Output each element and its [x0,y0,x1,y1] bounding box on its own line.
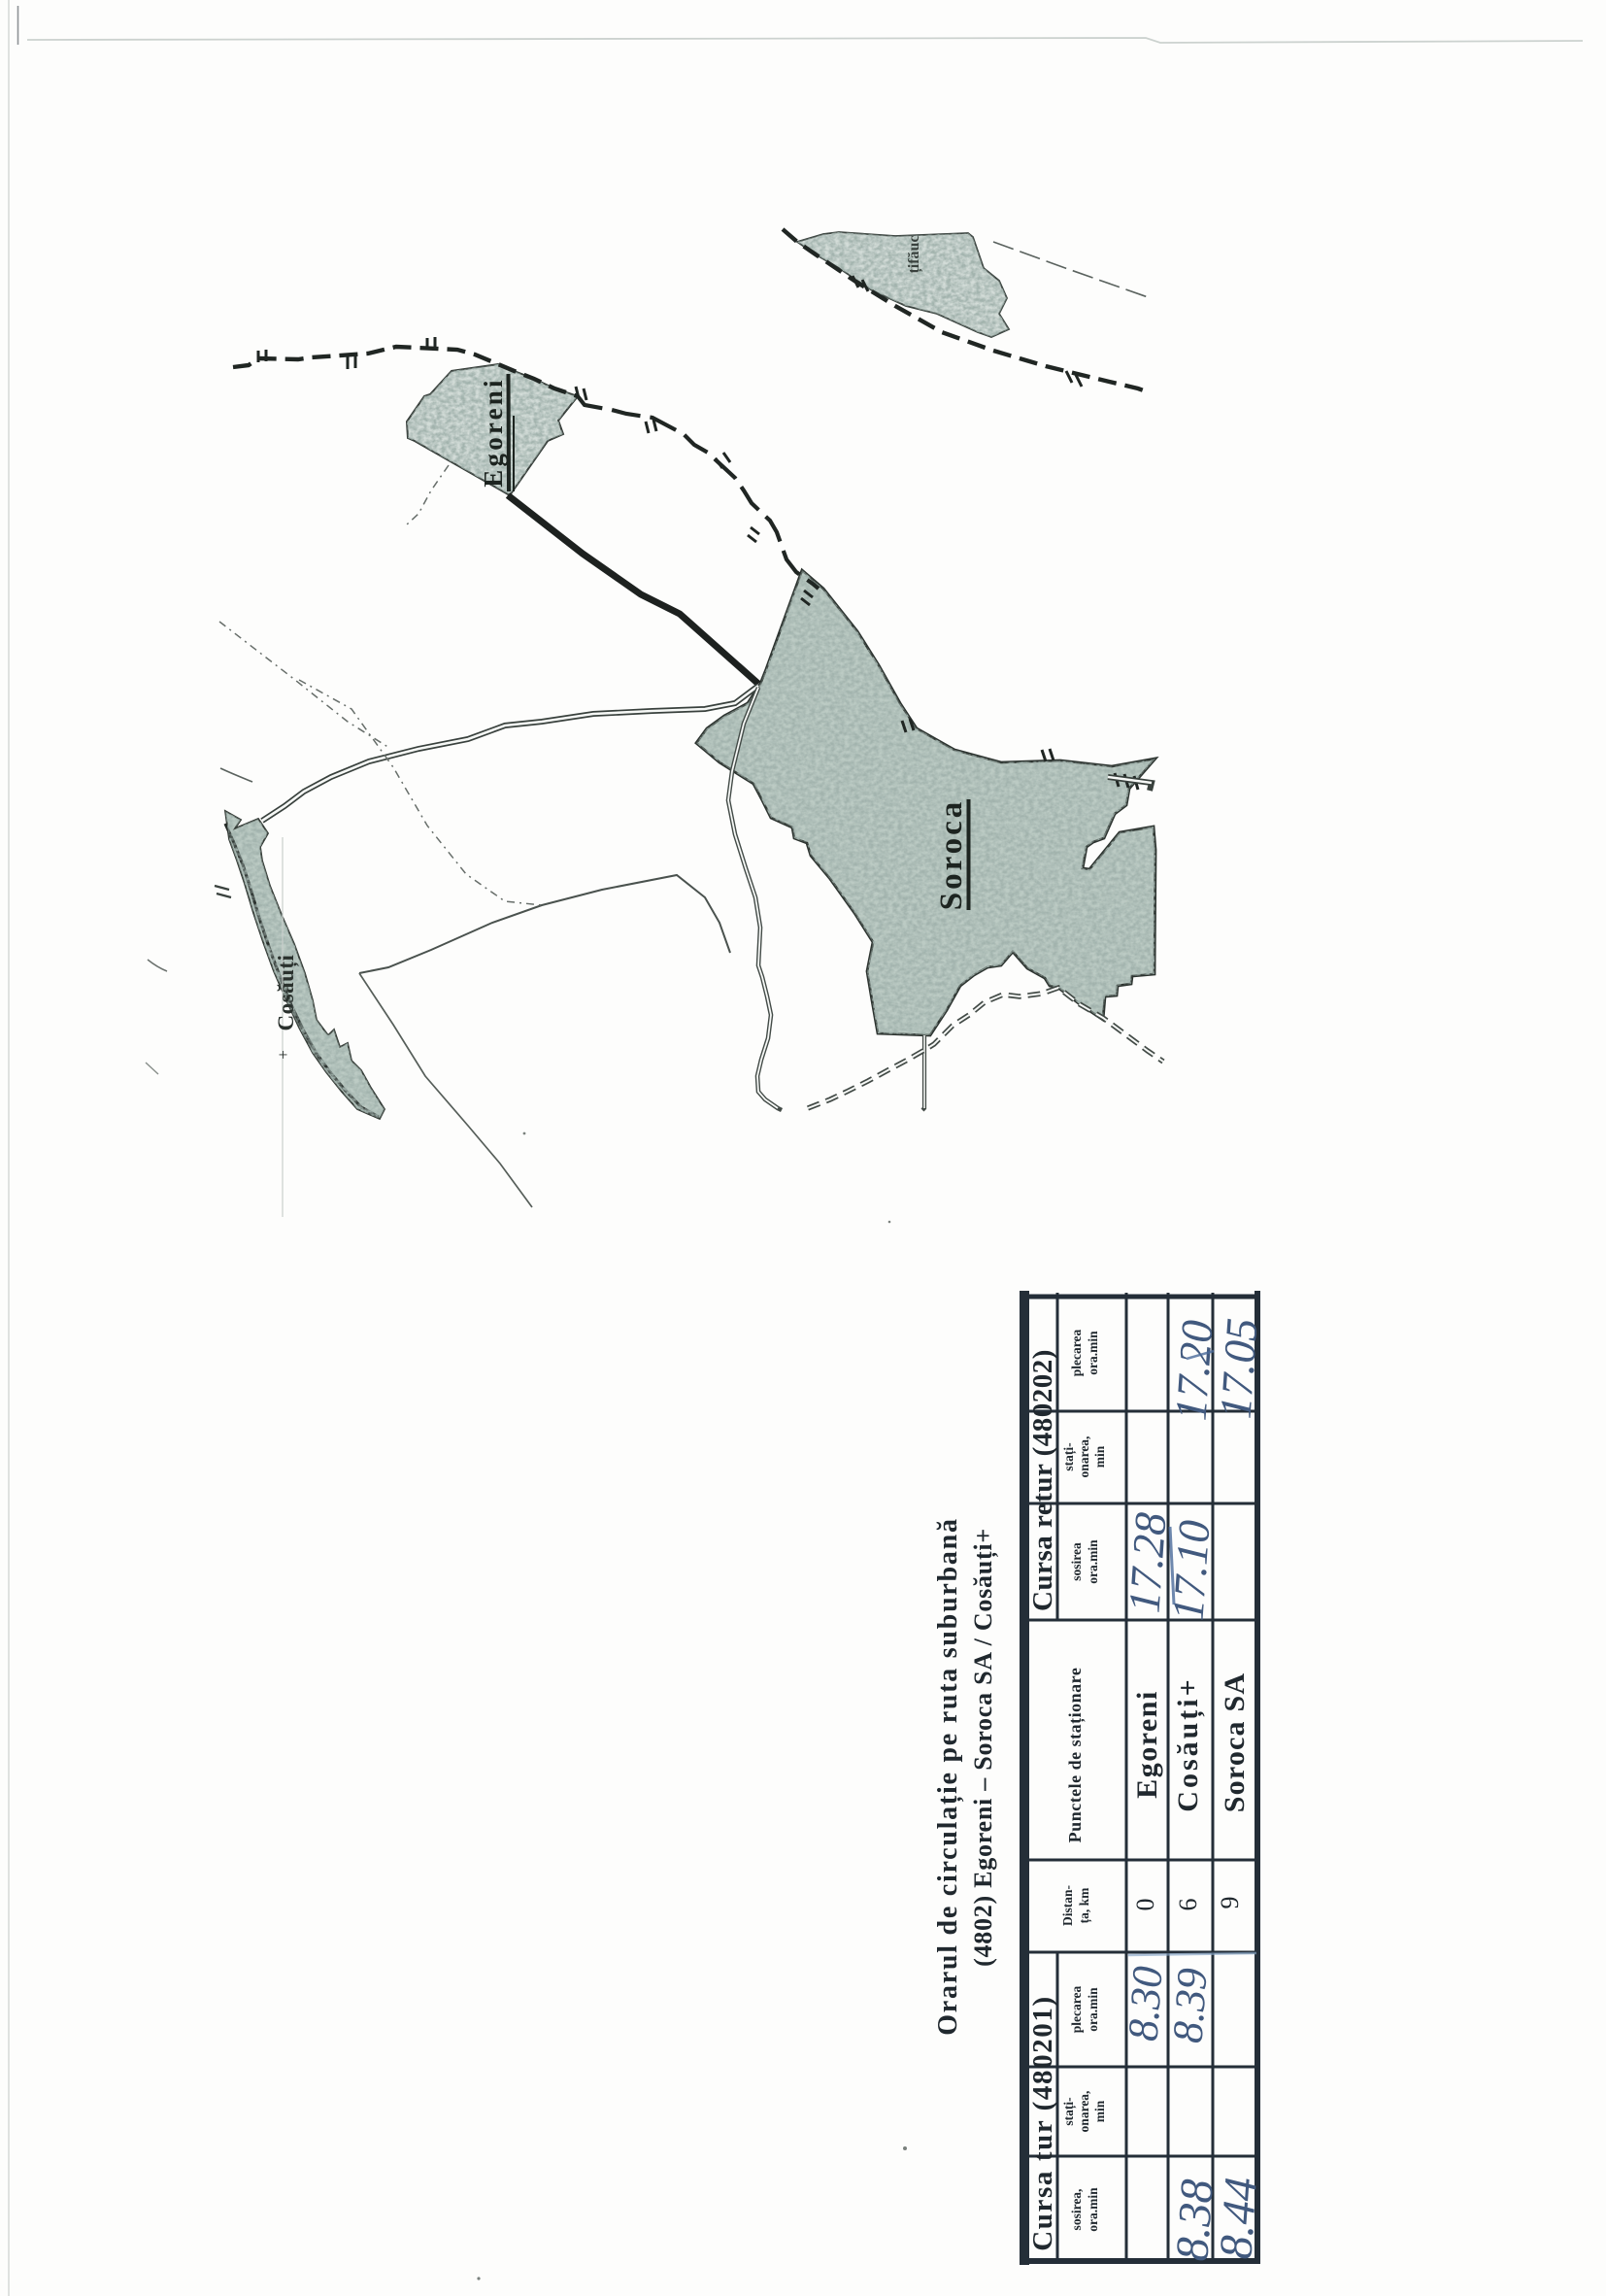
svg-text:Egoreni: Egoreni [1131,1690,1163,1799]
svg-text:stați-: stați- [1061,2097,1077,2125]
svg-text:Distan-: Distan- [1060,1885,1075,1926]
svg-text:onarea,: onarea, [1077,1436,1091,1478]
svg-text:sosirea: sosirea [1069,1542,1084,1581]
svg-text:(4802) Egoreni – Soroca SA / C: (4802) Egoreni – Soroca SA / Cosăuți+ [969,1528,998,1967]
svg-text:Cosăuți+: Cosăuți+ [1172,1676,1205,1811]
svg-text:Cosăuți: Cosăuți [274,954,299,1030]
svg-text:sosirea,: sosirea, [1069,2189,1084,2231]
svg-text:ora.min: ora.min [1086,1539,1100,1584]
svg-text:ora.min: ora.min [1086,1987,1100,2032]
svg-text:Cursa tur (480201): Cursa tur (480201) [1027,1995,1058,2250]
svg-text:stați-: stați- [1061,1442,1077,1470]
svg-text:onarea,: onarea, [1077,2091,1091,2133]
svg-text:plecarea: plecarea [1069,1986,1084,2034]
svg-text:Soroca: Soroca [934,799,969,911]
svg-text:17.05: 17.05 [1210,1317,1266,1421]
svg-text:plecarea: plecarea [1069,1330,1084,1377]
svg-text:8.39: 8.39 [1163,1967,1216,2044]
svg-text:Egoreni: Egoreni [479,377,508,487]
svg-text:8.44: 8.44 [1210,2176,1267,2260]
svg-text:țifăuc: țifăuc [906,235,923,273]
svg-text:Punctele de staționare: Punctele de staționare [1065,1668,1086,1843]
svg-text:6: 6 [1174,1899,1202,1911]
svg-text:min: min [1092,2100,1107,2122]
svg-text:9: 9 [1216,1897,1244,1909]
svg-text:ora.min: ora.min [1086,2187,1100,2232]
svg-text:min: min [1092,1445,1107,1468]
svg-text:0: 0 [1131,1899,1159,1911]
svg-text:+: + [274,1050,292,1060]
svg-text:Cursa retur (480202): Cursa retur (480202) [1027,1349,1058,1611]
svg-text:Orarul de circulație pe ruta s: Orarul de circulație pe ruta suburbană [933,1517,963,2035]
svg-text:ța, km: ța, km [1077,1887,1092,1924]
svg-text:ora.min: ora.min [1086,1331,1100,1375]
svg-text:Soroca SA: Soroca SA [1219,1672,1251,1812]
